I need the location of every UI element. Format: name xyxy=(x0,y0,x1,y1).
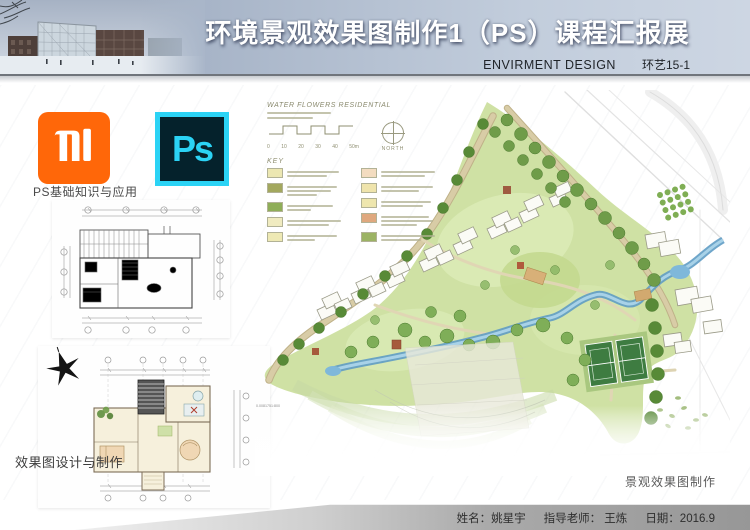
north-label: NORTH xyxy=(373,146,413,152)
header-fade xyxy=(0,76,750,83)
scale-tick: 40 xyxy=(332,144,338,150)
scale-bar-steps xyxy=(267,122,359,138)
legend-item xyxy=(361,232,443,243)
legend-swatch xyxy=(267,217,283,227)
legend-item xyxy=(361,213,443,228)
rooms xyxy=(94,380,210,490)
footer-info: 姓名：姚星宇 指导老师： 王炼 日期：2016.9 xyxy=(457,510,715,526)
scale-ticks: 0 10 20 30 40 50m xyxy=(267,144,359,150)
legend-swatch xyxy=(267,168,283,178)
legend-swatch xyxy=(267,183,283,193)
legend-item xyxy=(267,202,349,213)
subtitle-row: ENVIRMENT DESIGN 环艺15-1 xyxy=(483,56,690,73)
class-label: 环艺15-1 xyxy=(642,56,690,73)
legend-item xyxy=(267,217,349,228)
plan-caption: 景观效果图制作 xyxy=(625,473,716,490)
scale-bar: 0 10 20 30 40 50m xyxy=(267,122,359,152)
floor-plan-upper xyxy=(52,200,230,338)
legend-grid xyxy=(267,168,442,243)
landscape-master-plan: WATER FLOWERS RESIDENTIAL 0 10 20 30 40 … xyxy=(255,90,730,470)
legend-item xyxy=(267,183,349,198)
legend-item xyxy=(361,183,443,194)
plan-scale-note: 0.0081751:800 xyxy=(256,404,280,408)
walls xyxy=(80,226,200,308)
north-arrow xyxy=(41,346,85,388)
scale-tick: 20 xyxy=(298,144,304,150)
legend-swatch xyxy=(361,232,377,242)
scale-tick: 30 xyxy=(315,144,321,150)
legend-item xyxy=(267,232,349,243)
north-compass-icon xyxy=(382,122,404,144)
legend-swatch xyxy=(267,202,283,212)
floor-plan-lower-drawing xyxy=(38,346,270,508)
date: 日期：2016.9 xyxy=(645,510,715,526)
scale-tick: 10 xyxy=(281,144,287,150)
xiaomi-mi-glyph xyxy=(51,125,97,171)
legend-swatch xyxy=(361,168,377,178)
legend-key-label: KEY xyxy=(267,158,442,165)
legend-scribble xyxy=(267,117,313,119)
legend-column-right xyxy=(361,168,443,243)
scale-tick: 50m xyxy=(349,144,359,150)
bottom-fade xyxy=(255,405,730,470)
advisor-name: 指导老师： 王炼 xyxy=(544,510,628,526)
poster-title: 环境景观效果图制作1（PS）课程汇报展 xyxy=(200,13,695,50)
legend-swatch xyxy=(267,232,283,242)
legend-swatch xyxy=(361,183,377,193)
photoshop-logo: Ps xyxy=(155,112,229,186)
plan-legend: WATER FLOWERS RESIDENTIAL 0 10 20 30 40 … xyxy=(267,102,442,243)
legend-swatch xyxy=(361,213,377,223)
legend-column-left xyxy=(267,168,349,243)
poster-page: 环境景观效果图制作1（PS）课程汇报展 ENVIRMENT DESIGN 环艺1… xyxy=(0,0,750,530)
photo-blend xyxy=(140,0,205,74)
xiaomi-logo xyxy=(38,112,110,184)
section-label-rendering: 效果图设计与制作 xyxy=(15,452,123,471)
header-band: 环境景观效果图制作1（PS）课程汇报展 ENVIRMENT DESIGN 环艺1… xyxy=(0,0,750,74)
student-name: 姓名：姚星宇 xyxy=(457,510,526,526)
scale-tick: 0 xyxy=(267,144,270,150)
legend-swatch xyxy=(361,198,377,208)
orchard-grid xyxy=(656,183,694,221)
section-label-ps-basics: PS基础知识与应用 xyxy=(33,183,138,200)
legend-item xyxy=(361,198,443,209)
north-indicator: NORTH xyxy=(373,122,413,152)
legend-scribble xyxy=(267,112,331,114)
photoshop-logo-text: Ps xyxy=(172,131,212,167)
legend-item xyxy=(361,168,443,179)
campus-building-photo xyxy=(0,0,205,74)
subtitle-english: ENVIRMENT DESIGN xyxy=(483,58,616,72)
legend-title: WATER FLOWERS RESIDENTIAL xyxy=(267,102,442,109)
floor-plan-upper-drawing xyxy=(52,200,230,338)
floor-plan-lower xyxy=(38,346,270,508)
legend-item xyxy=(267,168,349,179)
